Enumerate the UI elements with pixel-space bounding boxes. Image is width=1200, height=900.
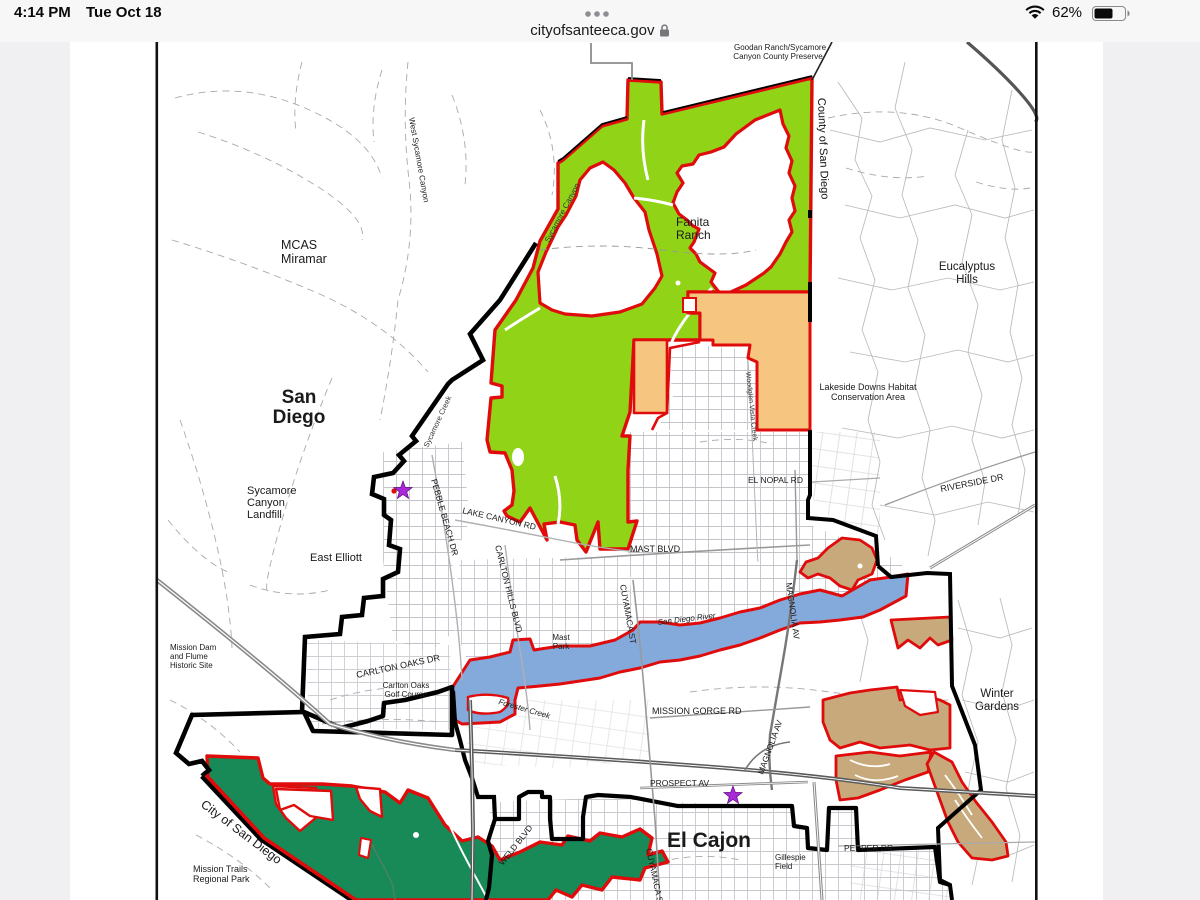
svg-text:EL NOPAL RD: EL NOPAL RD bbox=[748, 475, 803, 485]
svg-text:Canyon: Canyon bbox=[247, 497, 285, 509]
svg-text:PEPPER DR: PEPPER DR bbox=[844, 843, 893, 853]
svg-text:MCAS: MCAS bbox=[281, 238, 317, 252]
svg-text:Sycamore: Sycamore bbox=[247, 485, 297, 497]
svg-text:Mast: Mast bbox=[552, 633, 570, 642]
svg-text:Historic Site: Historic Site bbox=[170, 661, 213, 670]
svg-text:Gillespie: Gillespie bbox=[775, 853, 806, 862]
svg-text:Hills: Hills bbox=[956, 274, 978, 286]
svg-text:Mission Dam: Mission Dam bbox=[170, 643, 217, 652]
svg-text:Fanita: Fanita bbox=[676, 215, 710, 229]
svg-text:and Flume: and Flume bbox=[170, 652, 208, 661]
svg-text:Conservation Area: Conservation Area bbox=[831, 392, 905, 402]
svg-text:San: San bbox=[282, 387, 317, 408]
svg-text:Field: Field bbox=[775, 862, 792, 871]
svg-text:Diego: Diego bbox=[273, 407, 326, 428]
svg-text:MISSION GORGE RD: MISSION GORGE RD bbox=[652, 706, 742, 716]
svg-text:El Cajon: El Cajon bbox=[667, 829, 751, 852]
svg-text:Ranch: Ranch bbox=[676, 228, 711, 242]
svg-text:Winter: Winter bbox=[980, 688, 1013, 700]
svg-text:East Elliott: East Elliott bbox=[310, 552, 362, 564]
svg-text:MAST BLVD: MAST BLVD bbox=[630, 544, 681, 554]
svg-text:Park: Park bbox=[553, 642, 570, 651]
svg-text:Gardens: Gardens bbox=[975, 701, 1019, 713]
svg-text:Eucalyptus: Eucalyptus bbox=[939, 261, 996, 273]
svg-text:Golf Course: Golf Course bbox=[385, 690, 428, 699]
svg-text:Mission Trails: Mission Trails bbox=[193, 864, 248, 874]
svg-text:Carlton Oaks: Carlton Oaks bbox=[383, 681, 430, 690]
svg-text:Lakeside Downs Habitat: Lakeside Downs Habitat bbox=[819, 382, 917, 392]
svg-text:Miramar: Miramar bbox=[281, 252, 327, 266]
svg-text:Regional Park: Regional Park bbox=[193, 874, 250, 884]
svg-text:Landfill: Landfill bbox=[247, 509, 282, 521]
svg-text:Canyon County Preserve: Canyon County Preserve bbox=[733, 52, 823, 61]
svg-text:Goodan Ranch/Sycamore: Goodan Ranch/Sycamore bbox=[734, 43, 827, 52]
svg-text:PROSPECT AV: PROSPECT AV bbox=[650, 778, 710, 788]
